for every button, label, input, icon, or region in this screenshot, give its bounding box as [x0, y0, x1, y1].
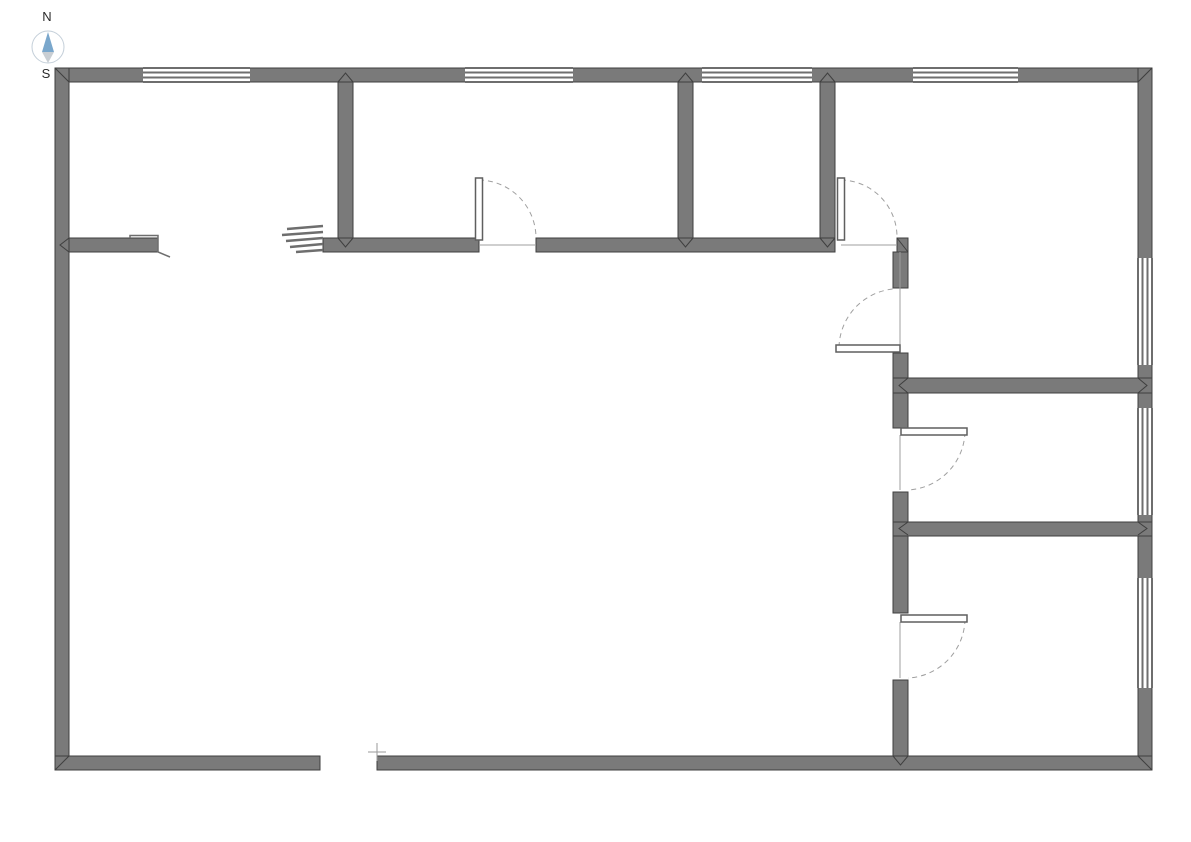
compass-north-label: N [42, 9, 51, 24]
door-leaf [901, 615, 967, 622]
floor-plan-canvas[interactable]: NS [0, 0, 1191, 842]
corridor-wall-west[interactable] [323, 238, 479, 252]
wall-break-hatch [287, 226, 323, 229]
window-right-1[interactable] [1137, 258, 1153, 365]
door-leaf [838, 178, 845, 240]
door-swing-arc [839, 289, 893, 347]
right-wing-wall-seg5[interactable] [893, 535, 908, 613]
door-3[interactable] [836, 252, 900, 352]
window-right-2[interactable] [1137, 408, 1153, 515]
interior-wall-a[interactable] [338, 82, 353, 238]
door-swing-arc [908, 432, 965, 490]
door-swing-arc [479, 180, 536, 238]
break-marks [130, 226, 323, 257]
window-body [143, 67, 250, 83]
window-top-4[interactable] [913, 67, 1018, 83]
walls-layer [55, 68, 1152, 770]
exterior-wall-bottom-west[interactable] [55, 756, 320, 770]
door-5[interactable] [900, 615, 967, 678]
wall-break-hatch [286, 238, 323, 241]
door-4[interactable] [900, 428, 967, 490]
wall-break-hatch [290, 244, 323, 247]
window-body [1137, 258, 1153, 365]
right-wing-wall-seg6[interactable] [893, 680, 908, 756]
window-body [1137, 578, 1153, 688]
room-divider-north[interactable] [893, 378, 1152, 393]
window-body [465, 67, 573, 83]
interior-wall-c[interactable] [820, 82, 835, 238]
right-wing-wall-seg2[interactable] [893, 353, 908, 378]
interior-wall-b[interactable] [678, 82, 693, 238]
door-swing-arc [841, 180, 897, 237]
door-1[interactable] [476, 178, 537, 245]
wall-joints [55, 68, 1152, 770]
room-divider-south[interactable] [893, 522, 1152, 536]
window-top-2[interactable] [465, 67, 573, 83]
right-wing-wall-seg4[interactable] [893, 492, 908, 522]
floor-plan-stage: NS [0, 0, 1191, 842]
exterior-wall-left[interactable] [55, 68, 69, 770]
door-2[interactable] [838, 178, 898, 245]
right-wing-wall-seg3[interactable] [893, 393, 908, 428]
door-leaf [476, 178, 483, 240]
exterior-wall-bottom-east[interactable] [377, 756, 1152, 770]
door-leaf [901, 428, 967, 435]
corridor-wall-stub[interactable] [69, 238, 158, 252]
door-leaf [836, 345, 900, 352]
compass-south-label: S [42, 66, 51, 81]
window-right-3[interactable] [1137, 578, 1153, 688]
wall-break-hatch [296, 250, 323, 252]
compass-north-needle-icon [42, 32, 54, 52]
window-top-3[interactable] [702, 67, 812, 83]
window-top-1[interactable] [143, 67, 250, 83]
compass-south-needle-icon [42, 52, 54, 63]
corridor-wall-mid[interactable] [536, 238, 835, 252]
wall-break-hatch [282, 232, 323, 235]
window-body [702, 67, 812, 83]
window-body [913, 67, 1018, 83]
window-body [1137, 408, 1153, 515]
door-swing-arc [908, 619, 965, 678]
